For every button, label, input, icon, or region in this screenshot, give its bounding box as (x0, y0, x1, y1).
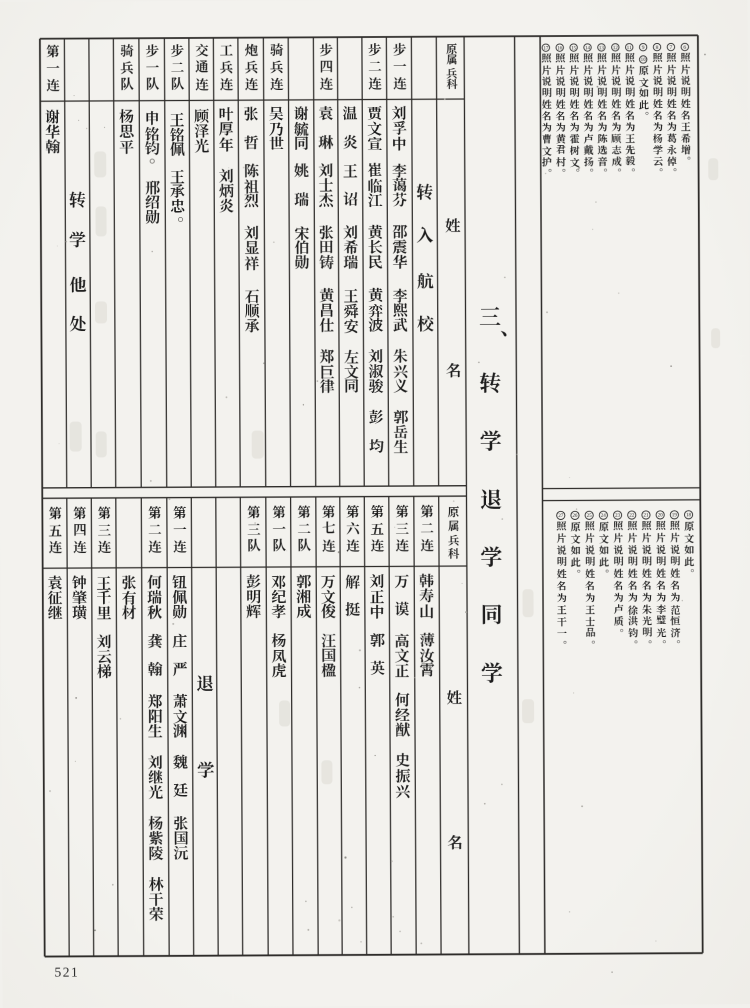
svg-text:7: 7 (670, 45, 673, 51)
svg-text:15: 15 (571, 46, 577, 51)
svg-text:17: 17 (543, 46, 549, 51)
svg-text:14: 14 (585, 46, 591, 51)
svg-text:9: 9 (642, 45, 645, 51)
svg-text:24: 24 (601, 514, 607, 519)
svg-text:27: 27 (558, 514, 564, 519)
svg-text:6: 6 (683, 45, 686, 51)
svg-text:25: 25 (587, 514, 593, 519)
svg-text:12: 12 (613, 46, 619, 51)
svg-text:26: 26 (572, 514, 578, 519)
svg-text:22: 22 (629, 514, 635, 519)
svg-text:18: 18 (686, 514, 692, 519)
svg-text:23: 23 (615, 514, 621, 519)
svg-text:13: 13 (599, 46, 605, 51)
svg-text:20: 20 (658, 514, 664, 519)
svg-text:16: 16 (557, 46, 563, 51)
svg-text:11: 11 (627, 46, 632, 51)
svg-text:10: 10 (641, 58, 647, 63)
svg-text:21: 21 (643, 514, 649, 519)
svg-text:8: 8 (656, 45, 659, 51)
svg-text:19: 19 (672, 514, 678, 519)
